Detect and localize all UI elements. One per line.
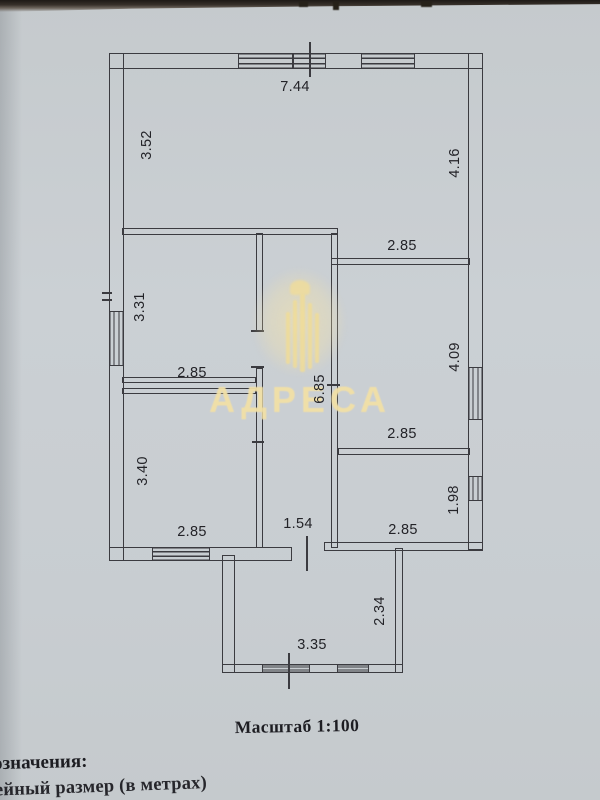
window-symbol xyxy=(262,664,310,673)
watermark-logo-bar xyxy=(293,300,297,368)
legend-item-linear-size: нейный размер (в метрах) xyxy=(0,773,207,800)
window-symbol xyxy=(468,367,483,420)
dimension-label-lower-left-width: 2.85 xyxy=(168,523,216,541)
watermark-logo-bar xyxy=(315,313,319,363)
dimension-label-porch-width: 3.35 xyxy=(288,636,336,654)
window-symbol xyxy=(468,476,483,501)
wall-right-rooms-divider xyxy=(338,448,470,455)
dimension-tick xyxy=(288,653,290,689)
watermark-text: АДРЕСА xyxy=(203,382,397,418)
outer-wall-bottom-right xyxy=(324,542,483,551)
watermark-logo-bar xyxy=(308,303,312,369)
cutoff-text-fragment xyxy=(421,1,432,7)
porch-wall-bottom xyxy=(222,664,403,673)
watermark-logo-icon xyxy=(290,280,310,295)
window-symbol xyxy=(361,53,415,69)
dimension-label-top-width: 7.44 xyxy=(271,78,319,96)
dimension-tick xyxy=(306,536,308,571)
window-symbol xyxy=(152,547,210,561)
dimension-label-corridor-length: 6.85 xyxy=(311,365,329,413)
door-jamb-tick xyxy=(251,366,264,368)
dimension-label-corridor-width: 1.54 xyxy=(274,515,322,533)
scanned-floor-plan-photo: АДРЕСА 7.44 3.52 4.16 2.85 3.31 2.85 6.8… xyxy=(0,0,600,800)
dimension-label-upper-right-width: 2.85 xyxy=(378,237,426,255)
window-end-tick xyxy=(102,299,112,301)
dimension-label-mid-left-height: 3.31 xyxy=(131,283,149,331)
dimension-tick xyxy=(309,42,311,77)
wall-top-room-bottom xyxy=(122,228,338,235)
dimension-label-mid-right-height: 4.09 xyxy=(446,333,464,381)
dimension-label-upper-left-height: 3.52 xyxy=(138,121,156,169)
outer-wall-left xyxy=(109,53,124,561)
dimension-label-lower-right-width: 2.85 xyxy=(379,521,427,539)
cutoff-text-fragment xyxy=(299,1,308,7)
cutoff-text-fragment xyxy=(333,1,339,10)
dimension-label-lower-right-height: 1.98 xyxy=(445,476,463,524)
dimension-label-lower-left-height: 3.40 xyxy=(134,447,152,495)
dimension-label-porch-depth: 2.34 xyxy=(371,587,389,635)
watermark-logo-bar xyxy=(300,294,305,372)
window-end-tick xyxy=(102,292,112,294)
window-symbol xyxy=(109,311,124,366)
dimension-label-upper-right-height: 4.16 xyxy=(446,139,464,187)
porch-wall-left xyxy=(222,555,235,673)
watermark-logo-bar xyxy=(286,312,290,364)
dimension-label-mid-right-width: 2.85 xyxy=(378,425,426,443)
legend-heading: означения: xyxy=(0,751,88,775)
window-symbol xyxy=(337,664,369,673)
scale-caption: Масштаб 1:100 xyxy=(187,714,407,739)
door-jamb-tick xyxy=(252,441,264,443)
window-symbol xyxy=(238,53,293,69)
wall-right-room-top xyxy=(331,258,470,265)
dimension-label-mid-left-width: 2.85 xyxy=(168,364,216,382)
porch-wall-right xyxy=(395,548,403,673)
